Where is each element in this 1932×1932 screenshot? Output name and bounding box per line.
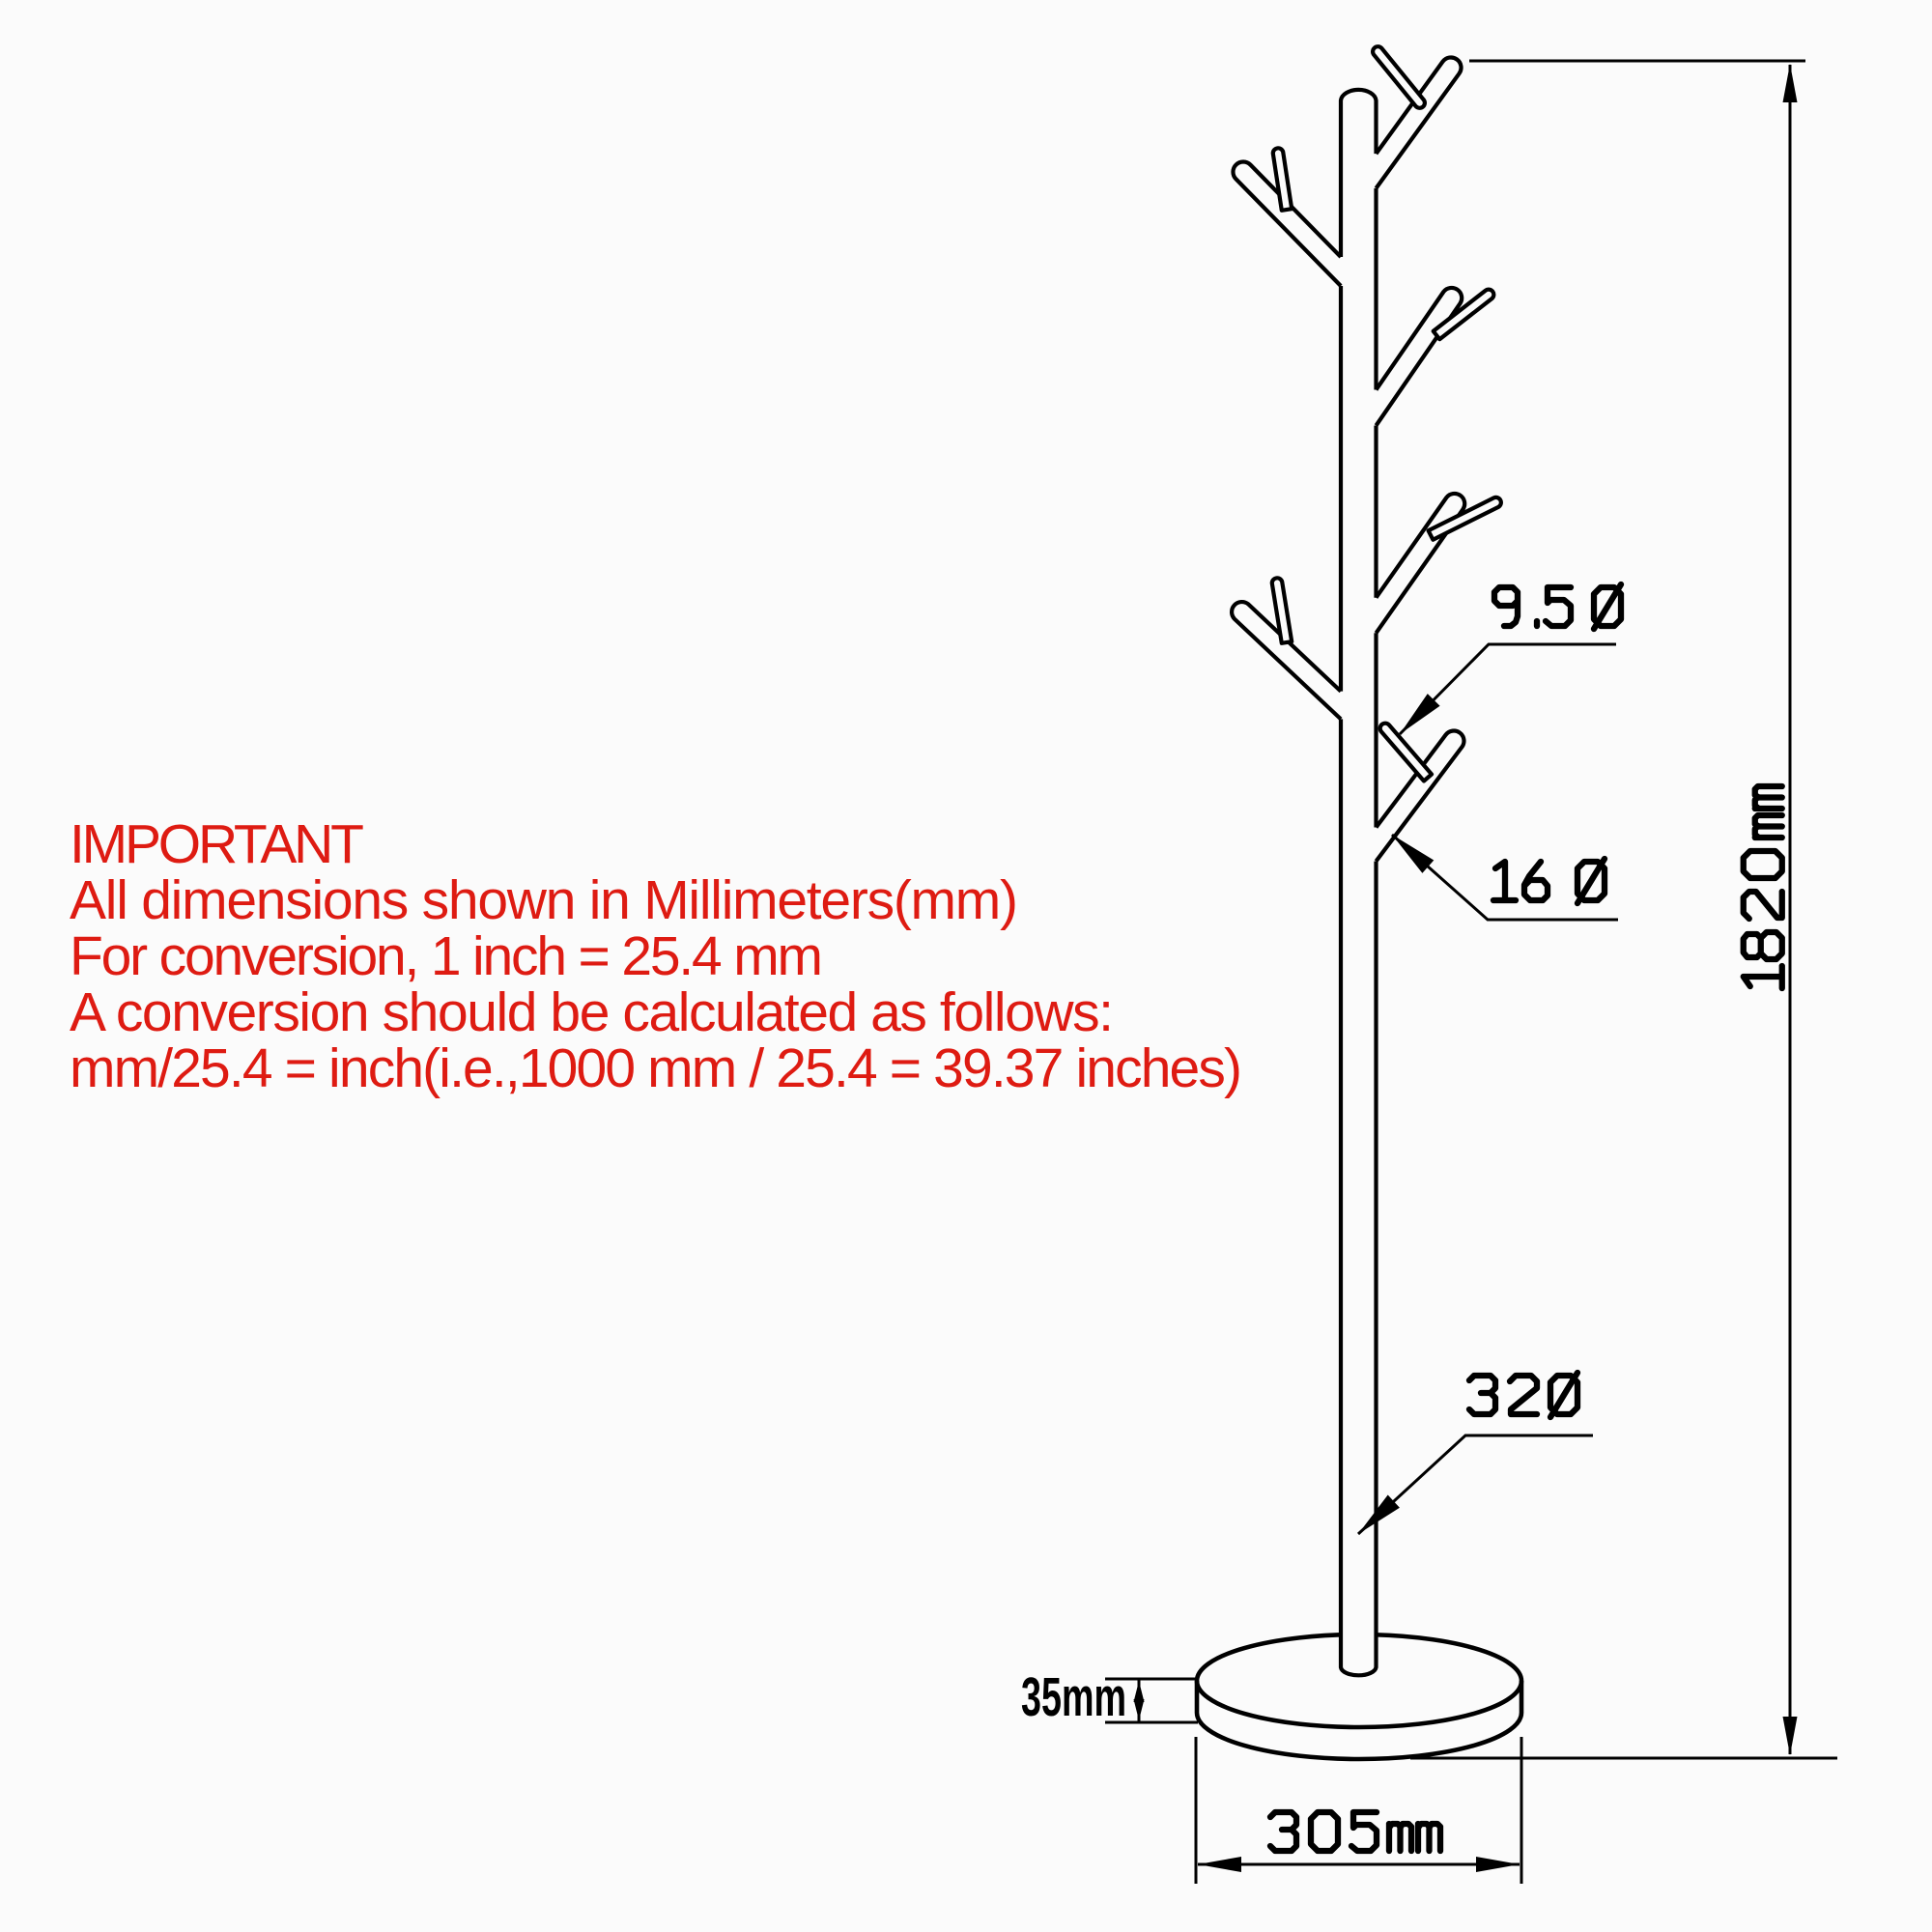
svg-text:mm/25.4 = inch(i.e.,1000 mm /: mm/25.4 = inch(i.e.,1000 mm / 25.4 = 39.…: [70, 1037, 1242, 1099]
svg-text:For conversion, 1 inch = 25.4: For conversion, 1 inch = 25.4 mm: [70, 925, 823, 987]
svg-text:All dimensions shown in Millim: All dimensions shown in Millimeters(mm): [70, 869, 1018, 931]
svg-text:35mm: 35mm: [1021, 1666, 1126, 1728]
svg-text:IMPORTANT: IMPORTANT: [70, 813, 364, 875]
svg-text:A conversion should be calcula: A conversion should be calculated as fol…: [70, 981, 1114, 1043]
